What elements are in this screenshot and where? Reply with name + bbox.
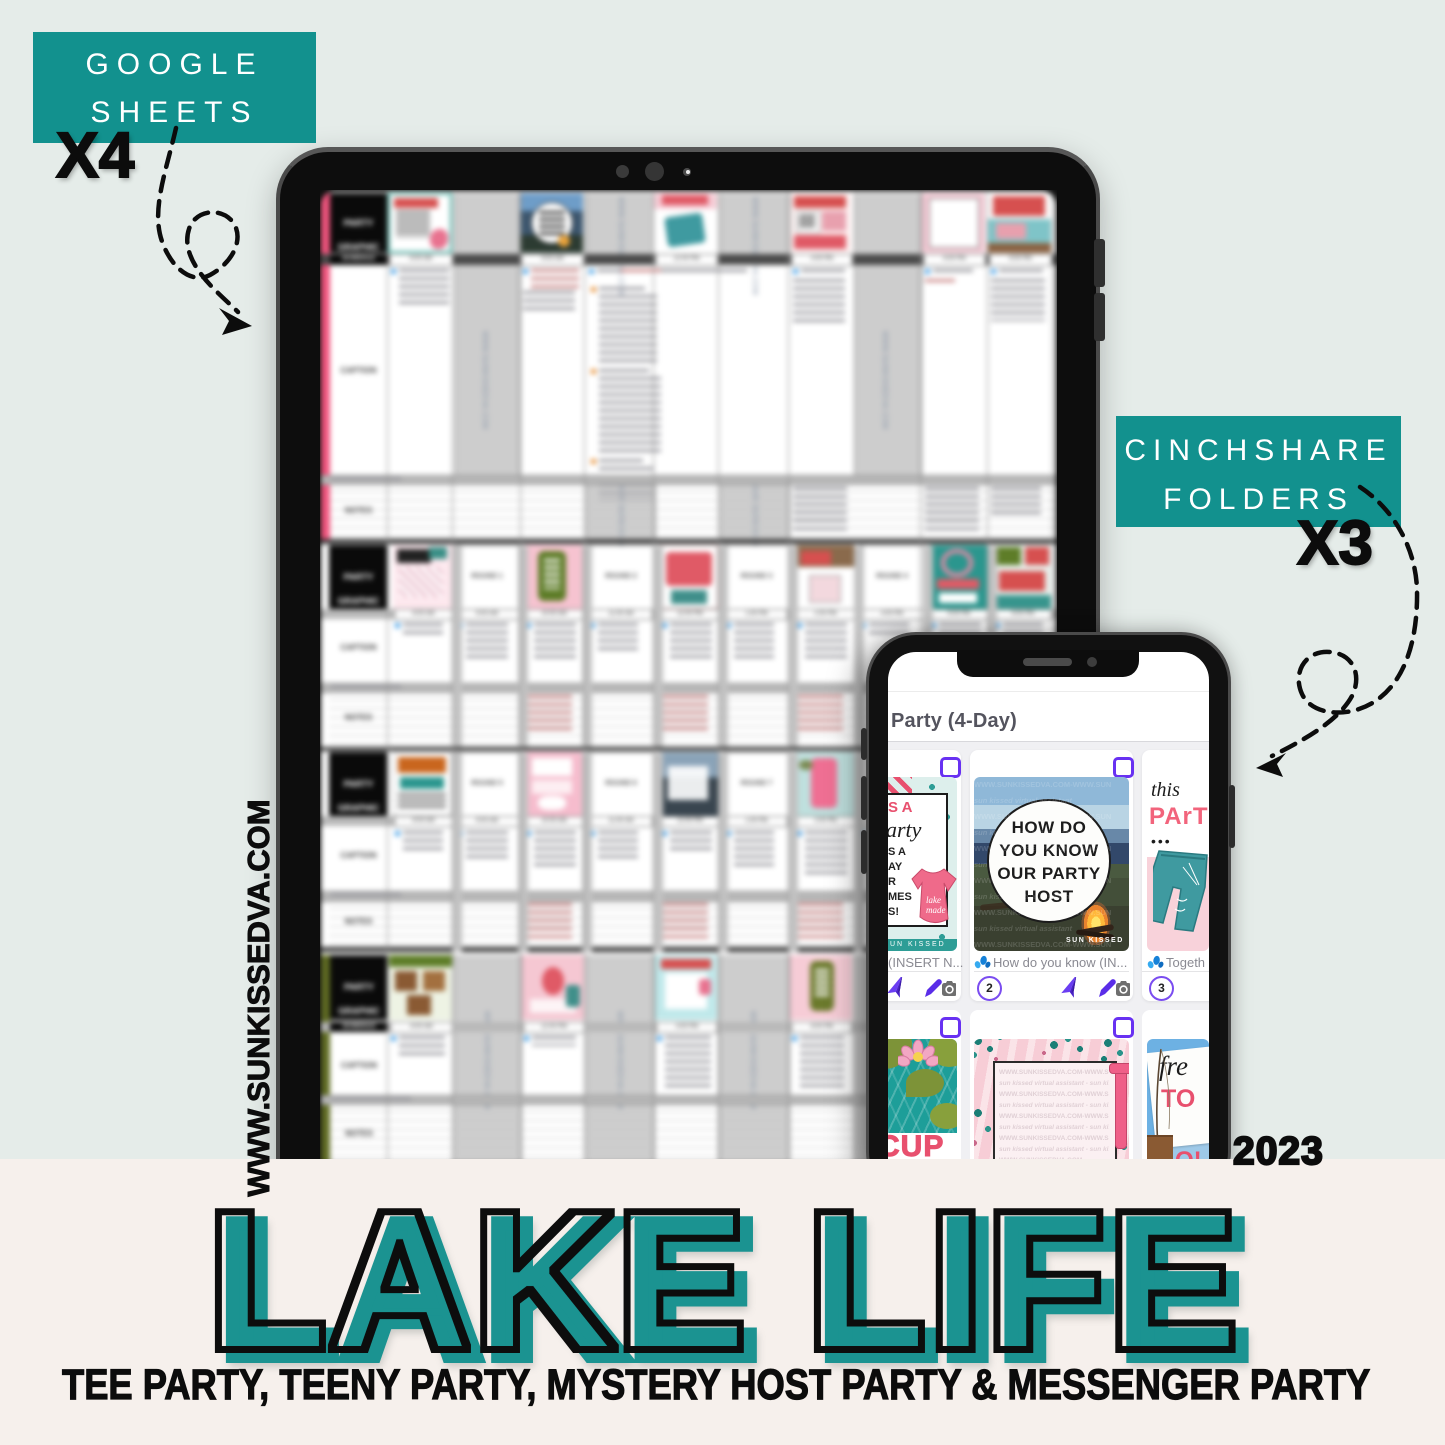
svg-text:lake: lake	[926, 895, 941, 905]
svg-text:LAKE LIFE: LAKE LIFE	[208, 1172, 1241, 1388]
svg-text:made: made	[926, 905, 946, 915]
